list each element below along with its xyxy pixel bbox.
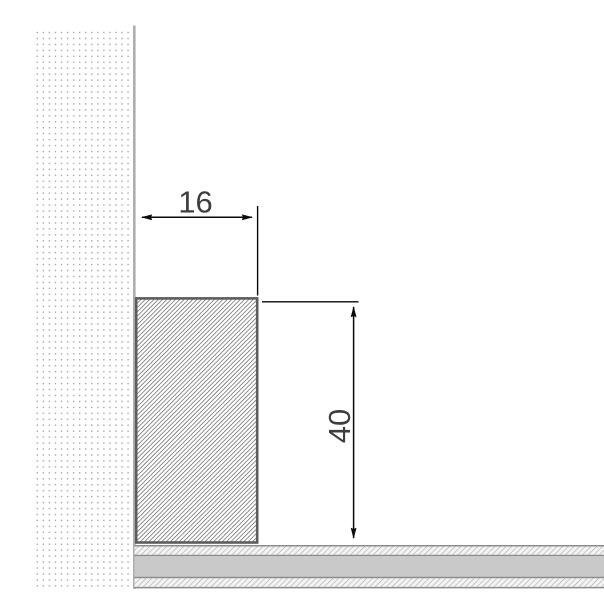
svg-text:40: 40 [322,409,357,443]
svg-text:16: 16 [178,185,212,220]
